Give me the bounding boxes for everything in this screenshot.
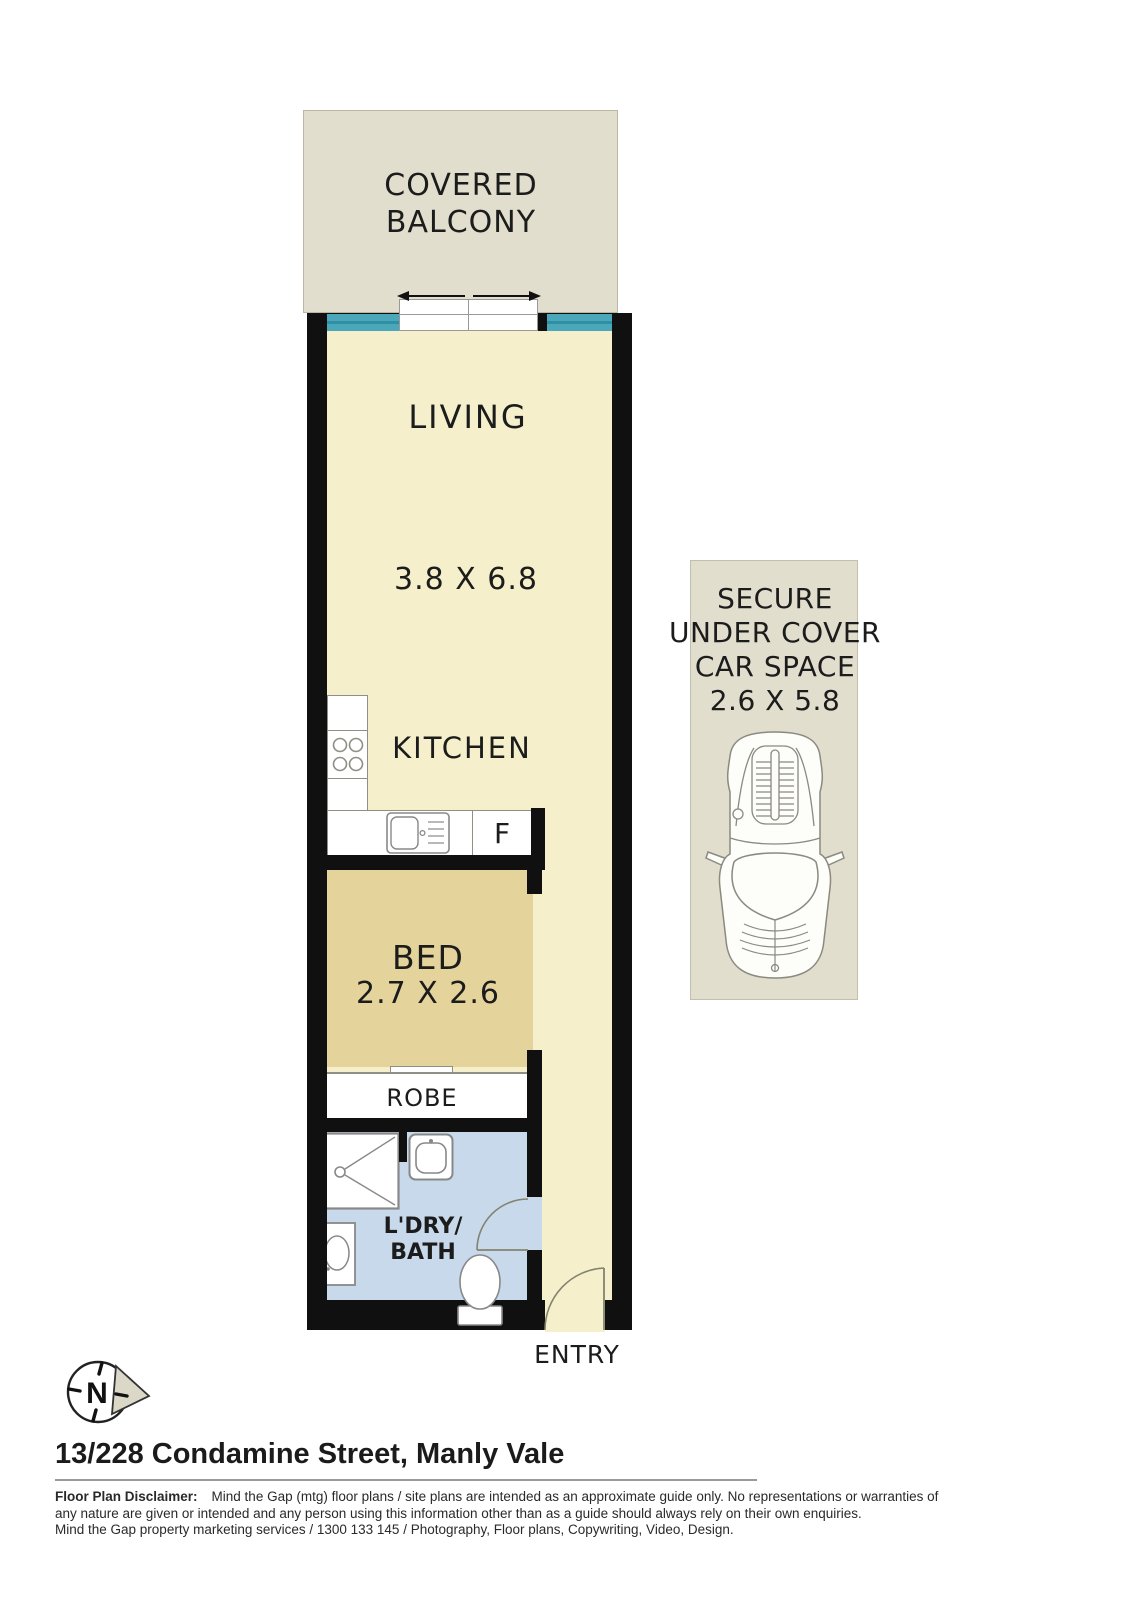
disclaimer-block: Floor Plan Disclaimer:Mind the Gap (mtg)… [55, 1489, 938, 1539]
window-right [547, 314, 612, 331]
sliding-door-split-v [468, 300, 469, 330]
disclaimer-text-1: Mind the Gap (mtg) floor plans / site pl… [212, 1489, 939, 1504]
bed-dims: 2.7 X 2.6 [356, 976, 500, 1011]
stove-burners-icon [327, 730, 368, 779]
wall-right [612, 313, 632, 1330]
disclaimer-line-2: any nature are given or intended and any… [55, 1506, 938, 1523]
toilet-icon [455, 1252, 505, 1327]
bed-label: BED [392, 938, 464, 977]
sliding-door-arrows-icon [395, 288, 543, 304]
wall-bed-stub-top [527, 868, 542, 894]
car-space-label-line1: SECURE [717, 582, 833, 615]
wall-fridge-stub [531, 808, 545, 870]
disclaimer-label: Floor Plan Disclaimer: [55, 1489, 198, 1504]
kitchen-label: KITCHEN [392, 731, 532, 765]
wall-left [307, 313, 327, 1330]
bath-label-line1: L'DRY/ [384, 1214, 463, 1239]
floor-plan-canvas: COVERED BALCONY [0, 0, 1125, 1600]
window-left [327, 314, 399, 331]
sliding-door-split-h [400, 314, 537, 315]
shower-icon [322, 1132, 400, 1210]
bath-label-line2: BATH [390, 1240, 456, 1265]
kitchen-sink-icon [386, 812, 450, 854]
footer-divider-line [55, 1479, 757, 1481]
living-label: LIVING [408, 398, 527, 436]
car-space-dims: 2.6 X 5.8 [710, 684, 841, 717]
disclaimer-line-1: Floor Plan Disclaimer:Mind the Gap (mtg)… [55, 1489, 938, 1506]
entry-label: ENTRY [534, 1340, 620, 1369]
robe-label: ROBE [386, 1084, 457, 1112]
wall-bath-hall-upper [527, 1132, 542, 1197]
address-title: 13/228 Condamine Street, Manly Vale [55, 1438, 564, 1471]
bathroom-door-swing-icon [470, 1190, 545, 1256]
living-dims: 3.8 X 6.8 [394, 562, 538, 597]
disclaimer-line-3: Mind the Gap property marketing services… [55, 1522, 938, 1539]
car-space-label-line3: CAR SPACE [695, 650, 855, 683]
wall-shower-stub [399, 1132, 407, 1162]
fridge-divider-line [472, 811, 473, 855]
svg-text:N: N [86, 1377, 108, 1410]
bathroom-basin-icon [408, 1133, 454, 1181]
wall-kitchen-bed [307, 855, 545, 870]
north-compass-icon: N [52, 1352, 157, 1434]
car-space-label-line2: UNDER COVER [669, 616, 881, 649]
entry-door-swing-icon [540, 1262, 610, 1332]
robe-door-panel [390, 1066, 453, 1073]
balcony-label-line2: BALCONY [386, 205, 536, 240]
wall-robe-bath [307, 1118, 542, 1132]
balcony-label-line1: COVERED [384, 168, 537, 203]
fridge-label: F [494, 817, 510, 850]
car-top-view-icon [700, 726, 850, 986]
